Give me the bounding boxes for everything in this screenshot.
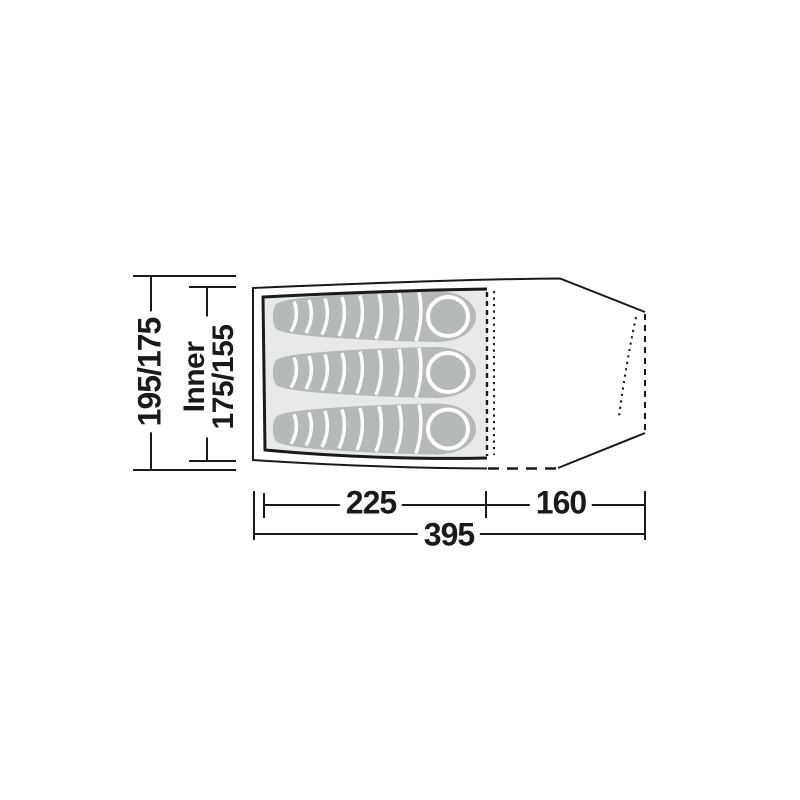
outer-height-label: 195/175 (132, 312, 169, 433)
inner-height-label-prefix: Inner (180, 325, 209, 430)
total-length-label: 395 (418, 517, 480, 554)
inner-height-label-value: 175/155 (209, 325, 238, 430)
sleeping-bag (273, 404, 476, 455)
inner-length-label: 225 (340, 485, 402, 522)
sleeping-bag (273, 347, 476, 398)
inner-height-label: Inner 175/155 (178, 317, 240, 438)
porch-length-label: 160 (530, 485, 592, 522)
tent-dimension-diagram: 195/175 Inner 175/155 225 160 395 (0, 0, 800, 800)
tent-diagram-canvas (0, 0, 800, 800)
porch-door-dotted-line (619, 317, 636, 417)
sleeping-bag (273, 291, 476, 342)
porch-bottom-slope (558, 433, 645, 468)
